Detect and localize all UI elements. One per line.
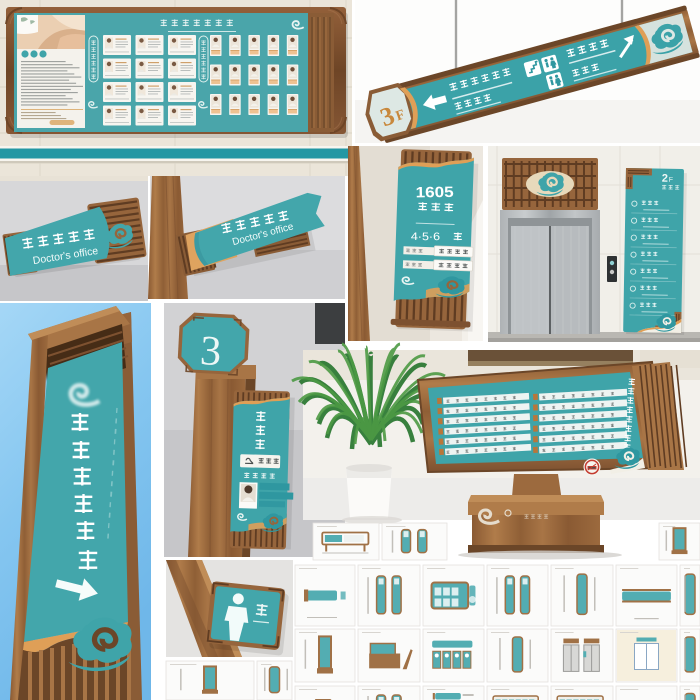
svg-text:2: 2 — [662, 173, 668, 185]
svg-text:1605: 1605 — [415, 184, 453, 201]
svg-text:F: F — [669, 177, 673, 184]
svg-text:4·5·6: 4·5·6 — [411, 231, 441, 243]
svg-text:3: 3 — [199, 328, 222, 375]
